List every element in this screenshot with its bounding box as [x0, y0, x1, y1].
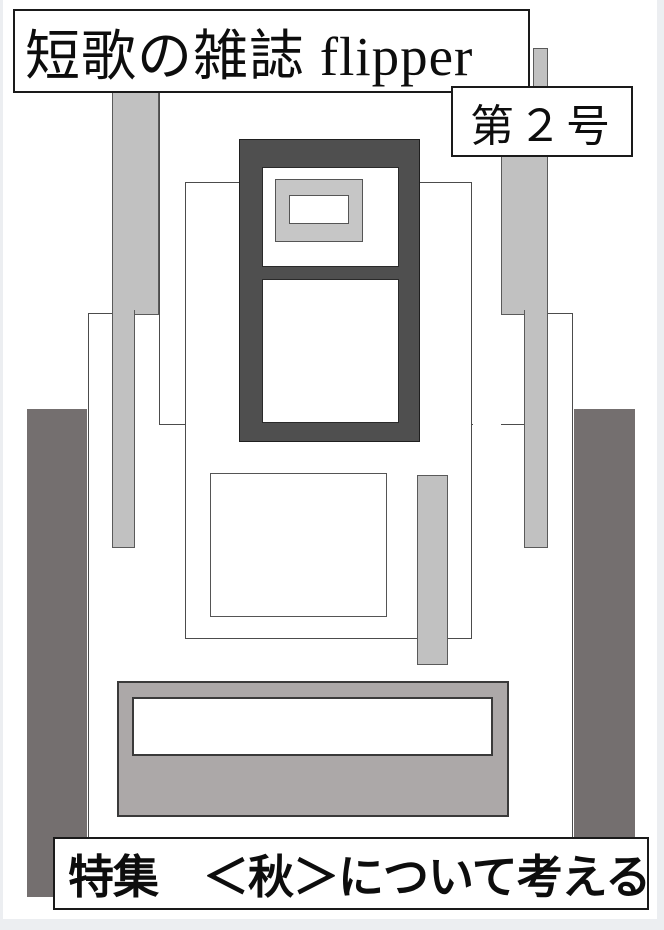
- frame-window-white-inset: [289, 195, 349, 224]
- feature-box: 特集 ＜秋＞について考える: [53, 837, 649, 910]
- issue-number: 第２号: [470, 90, 614, 154]
- bar-center-short: [417, 475, 448, 665]
- title-box: 短歌の雑誌 flipper: [13, 9, 530, 93]
- bar-left-narrow: [112, 310, 135, 548]
- bar-right-wide: [501, 155, 548, 315]
- white-patch: [473, 310, 501, 546]
- column-right: [574, 409, 636, 897]
- frame-window-bottom: [262, 279, 399, 423]
- outlined-rect-center: [210, 473, 387, 617]
- issue-box: 第２号: [451, 86, 633, 157]
- magazine-title: 短歌の雑誌 flipper: [25, 11, 473, 91]
- magazine-cover: 短歌の雑誌 flipper 第２号 特集 ＜秋＞について考える: [0, 0, 664, 930]
- bar-left-wide: [112, 68, 159, 315]
- banner-slot: [132, 697, 493, 756]
- column-left: [27, 409, 87, 897]
- feature-title: 特集 ＜秋＞について考える: [68, 841, 649, 907]
- bar-right-narrow: [524, 310, 548, 548]
